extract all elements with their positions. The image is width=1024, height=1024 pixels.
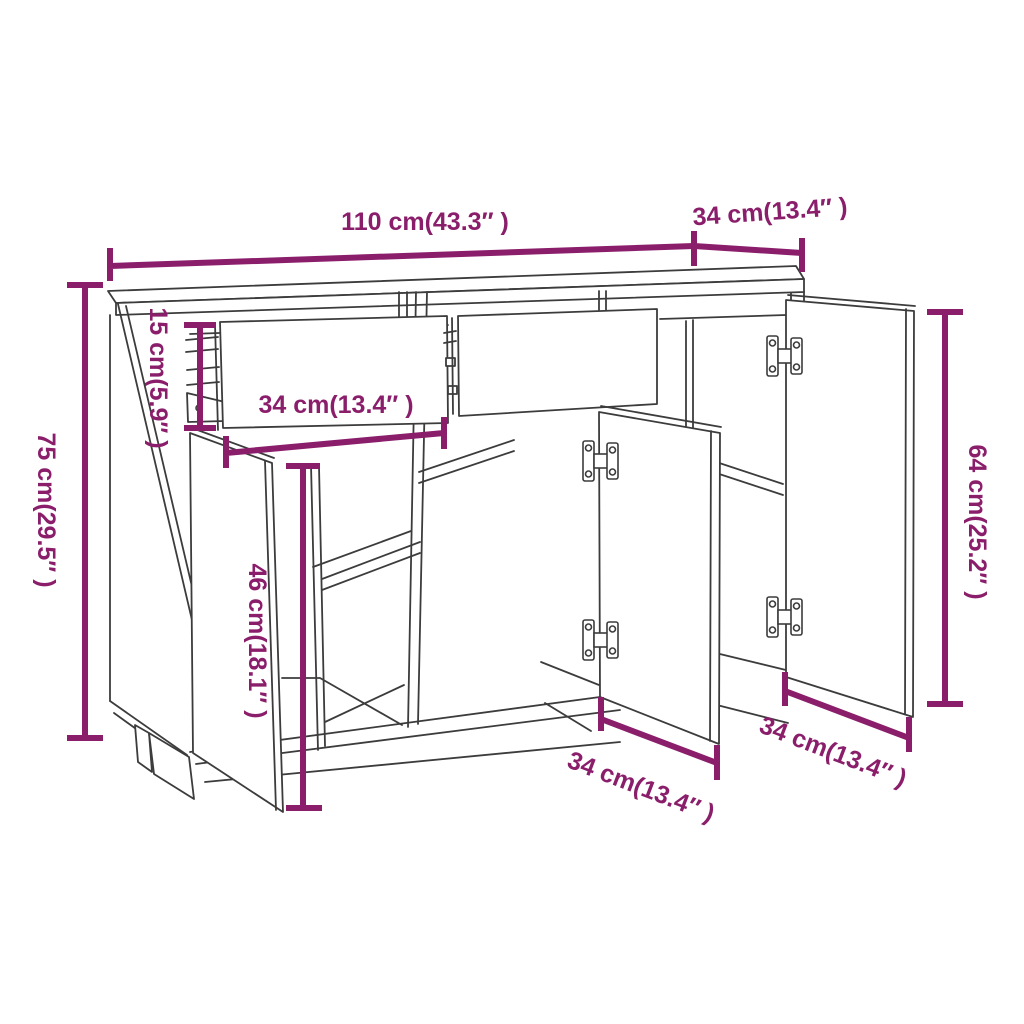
- dim-depth-top-label: 34 cm(13.4″ ): [692, 193, 849, 232]
- dimension-diagram-page: 110 cm(43.3″ ) 34 cm(13.4″ ) 75 cm(29.5″…: [0, 0, 1024, 1024]
- dim-height-total-line: [67, 285, 103, 738]
- dim-height-total: 75 cm(29.5″ ): [32, 285, 103, 738]
- dim-door-height-line: [286, 466, 322, 808]
- shelf-left-compartment: [313, 531, 420, 590]
- dim-drawer-height: 15 cm(5.9″ ): [144, 307, 216, 448]
- dim-drawer-width: 34 cm(13.4″ ): [226, 391, 444, 468]
- dim-drawer-width-label: 34 cm(13.4″ ): [258, 391, 413, 419]
- dim-height-total-label: 75 cm(29.5″ ): [32, 432, 60, 587]
- dim-door-width-middle-label: 34 cm(13.4″ ): [564, 746, 719, 828]
- hinge-icon: [767, 336, 802, 376]
- door-right-panel[interactable]: [786, 300, 914, 717]
- drawer-center-front[interactable]: [458, 309, 657, 416]
- drawer2-slide-block-a: [446, 358, 455, 366]
- left-foot-front: [149, 733, 194, 799]
- partition-left-center: [311, 465, 325, 750]
- left-foot-side: [135, 725, 152, 772]
- dim-door-panel-height-label: 64 cm(25.2″ ): [963, 444, 991, 599]
- sideboard-dimension-diagram: 110 cm(43.3″ ) 34 cm(13.4″ ) 75 cm(29.5″…: [0, 0, 1024, 1024]
- dim-door-panel-height-line: [927, 312, 963, 704]
- shelf-center-compartment: [419, 440, 514, 483]
- dim-width-top: 110 cm(43.3″ ): [110, 208, 694, 281]
- dim-door-panel-height: 64 cm(25.2″ ): [927, 312, 991, 704]
- dim-drawer-height-label: 15 cm(5.9″ ): [144, 307, 172, 448]
- dim-door-height-label: 46 cm(18.1″ ): [243, 563, 271, 718]
- drawer-center-side-edge: [452, 318, 453, 414]
- floor-center-compartment: [541, 662, 599, 731]
- dim-depth-top: 34 cm(13.4″ ): [692, 193, 849, 272]
- drawer-slide-bracket: [187, 393, 225, 422]
- dim-door-width-right-label: 34 cm(13.4″ ): [756, 711, 911, 793]
- dim-width-top-label: 110 cm(43.3″ ): [341, 208, 509, 236]
- hinge-icon: [767, 597, 802, 637]
